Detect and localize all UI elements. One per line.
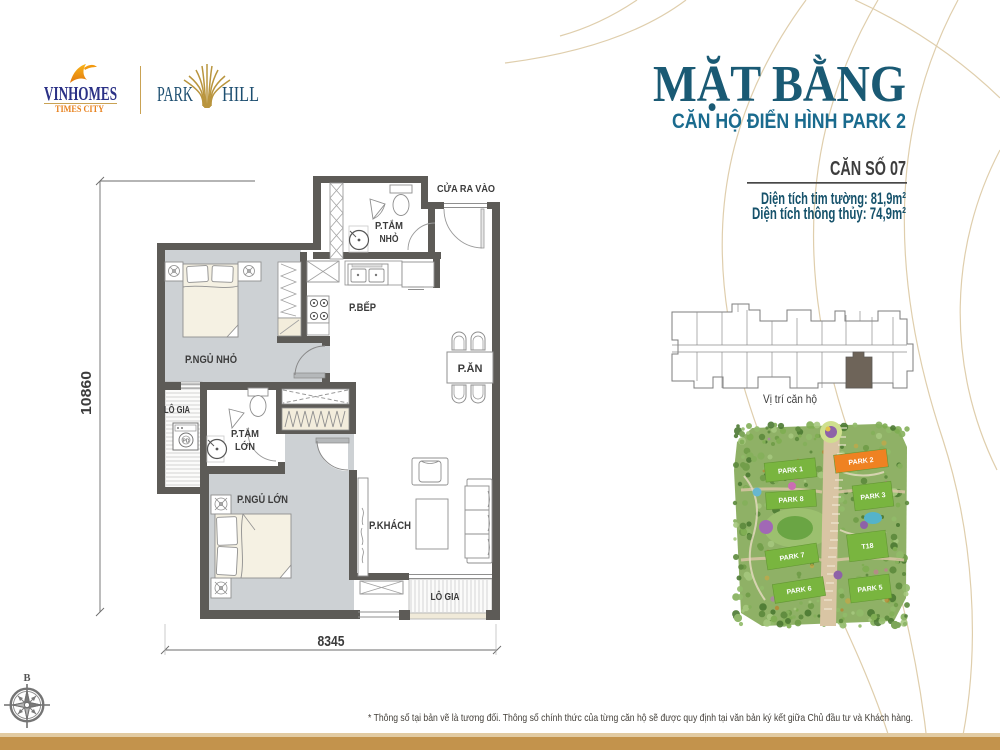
svg-text:NHỎ: NHỎ [380, 232, 399, 245]
svg-text:10860: 10860 [78, 371, 95, 415]
svg-text:CĂN HỘ ĐIỂN HÌNH PARK 2: CĂN HỘ ĐIỂN HÌNH PARK 2 [672, 109, 906, 133]
svg-text:CĂN SỐ 07: CĂN SỐ 07 [830, 156, 906, 180]
svg-text:PARK: PARK [157, 82, 193, 106]
svg-text:CỬA RA VÀO: CỬA RA VÀO [437, 182, 495, 195]
svg-text:P.TẮM: P.TẮM [375, 219, 403, 232]
svg-text:Diện tích thông thủy: 74,9m²: Diện tích thông thủy: 74,9m² [752, 205, 906, 223]
svg-text:P.NGỦ NHỎ: P.NGỦ NHỎ [185, 353, 237, 366]
svg-text:LÔ GIA: LÔ GIA [164, 403, 190, 416]
svg-text:VINHOMES: VINHOMES [44, 83, 117, 105]
svg-text:* Thông số tại bản vẽ là tương: * Thông số tại bản vẽ là tương đối. Thôn… [368, 712, 913, 724]
svg-text:HILL: HILL [222, 82, 259, 106]
svg-text:8345: 8345 [318, 633, 345, 650]
svg-text:P.ĂN: P.ĂN [458, 362, 483, 375]
svg-text:LÔ GIA: LÔ GIA [431, 590, 460, 603]
svg-text:MẶT BẰNG: MẶT BẰNG [653, 53, 906, 113]
svg-text:P.TẮM: P.TẮM [231, 427, 259, 440]
svg-text:P.BẾP: P.BẾP [349, 301, 376, 314]
svg-text:P.KHÁCH: P.KHÁCH [369, 519, 411, 532]
svg-text:B: B [23, 673, 30, 684]
svg-text:P.NGỦ LỚN: P.NGỦ LỚN [237, 493, 288, 506]
svg-text:Vị trí căn hộ: Vị trí căn hộ [763, 392, 817, 406]
svg-text:LỚN: LỚN [235, 440, 255, 453]
svg-text:T18: T18 [861, 543, 874, 551]
svg-text:TIMES CITY: TIMES CITY [55, 105, 104, 115]
svg-text:PD: PD [183, 439, 190, 445]
